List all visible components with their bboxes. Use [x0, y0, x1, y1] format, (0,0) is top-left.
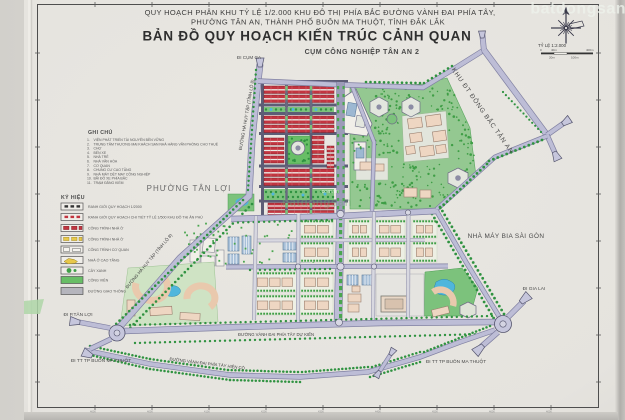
svg-text:PHƯỜNG TÂN LỢI: PHƯỜNG TÂN LỢI: [147, 184, 232, 193]
svg-text:RANH GIỚI QUY HOẠCH 1/2000: RANH GIỚI QUY HOẠCH 1/2000: [88, 204, 142, 209]
svg-text:20m: 20m: [549, 56, 555, 60]
svg-text:CÔNG TRÌNH NHÀ Ở: CÔNG TRÌNH NHÀ Ở: [88, 237, 123, 242]
svg-text:BẢN ĐỒ QUY HOẠCH KIẾN TRÚC CẢN: BẢN ĐỒ QUY HOẠCH KIẾN TRÚC CẢNH QUAN: [142, 29, 471, 44]
svg-text:4000: 4000: [546, 410, 552, 414]
svg-text:ĐI P.TÂN LỢI: ĐI P.TÂN LỢI: [63, 311, 92, 318]
svg-text:4600: 4600: [489, 410, 495, 414]
svg-text:CÔNG VIÊN: CÔNG VIÊN: [88, 278, 109, 283]
svg-text:NHÀ TRẺ: NHÀ TRẺ: [94, 154, 110, 159]
svg-text:CỤM CÔNG NGHIỆP TÂN AN 2: CỤM CÔNG NGHIỆP TÂN AN 2: [305, 47, 420, 56]
svg-text:NHÀ VĂN HÓA: NHÀ VĂN HÓA: [94, 159, 118, 164]
svg-text:400m: 400m: [586, 48, 594, 52]
svg-text:ĐI CỤM GA: ĐI CỤM GA: [237, 55, 262, 60]
svg-text:.com.vn: .com.vn: [320, 189, 339, 195]
svg-text:CÔNG TRÌNH NHÀ Ở: CÔNG TRÌNH NHÀ Ở: [88, 226, 123, 231]
svg-text:4100: 4100: [204, 410, 210, 414]
svg-text:4300: 4300: [318, 410, 324, 414]
svg-text:batdongsan: batdongsan: [530, 1, 625, 18]
svg-text:RANH GIỚI QUY HOẠCH CHI TIẾT T: RANH GIỚI QUY HOẠCH CHI TIẾT TỶ LỆ 1/500…: [88, 215, 203, 220]
svg-text:GHI CHÚ: GHI CHÚ: [88, 129, 113, 136]
svg-text:TRUNG TÂM THƯƠNG MẠI KHÁCH SẠN: TRUNG TÂM THƯƠNG MẠI KHÁCH SẠN NHÀ HÀNG …: [94, 141, 219, 146]
svg-text:NHÀ Ở CAO TẦNG: NHÀ Ở CAO TẦNG: [88, 258, 120, 263]
svg-text:TRẠM ĐĂNG KIỂM: TRẠM ĐĂNG KIỂM: [94, 180, 124, 185]
svg-text:100m: 100m: [571, 56, 579, 60]
svg-text:40m: 40m: [551, 48, 557, 52]
svg-text:QUY HOẠCH PHÂN KHU TỶ LỆ 1/2.0: QUY HOẠCH PHÂN KHU TỶ LỆ 1/2.000 KHU ĐÔ …: [145, 8, 496, 17]
svg-text:NHÀ MÁY DỆT MAY CÔNG NGHIỆP: NHÀ MÁY DỆT MAY CÔNG NGHIỆP: [94, 171, 152, 176]
svg-text:ĐƯỜNG VÀNH ĐAI PHÍA TÂY DỰ KIẾ: ĐƯỜNG VÀNH ĐAI PHÍA TÂY DỰ KIẾN: [238, 332, 314, 337]
svg-text:4200: 4200: [261, 410, 267, 414]
svg-text:4500: 4500: [432, 410, 438, 414]
svg-text:ĐI TT TP BUÔN MA THUỘT: ĐI TT TP BUÔN MA THUỘT: [426, 358, 486, 365]
svg-text:VIỆN PHÁT TRIỂN TÀI NGUYÊN BỀN: VIỆN PHÁT TRIỂN TÀI NGUYÊN BỀN VỮNG: [94, 137, 165, 142]
svg-text:PHƯỜNG TÂN AN, THÀNH PHỐ BUÔN: PHƯỜNG TÂN AN, THÀNH PHỐ BUÔN MA THUỘT, …: [191, 17, 445, 27]
svg-text:CÔNG TRÌNH CƠ QUAN: CÔNG TRÌNH CƠ QUAN: [88, 247, 129, 252]
svg-text:KÝ HIỆU: KÝ HIỆU: [61, 193, 85, 201]
svg-text:4600: 4600: [90, 410, 96, 414]
svg-text:11.: 11.: [87, 181, 92, 185]
svg-text:NHÀ MÁY BIA SÀI GÒN: NHÀ MÁY BIA SÀI GÒN: [468, 231, 545, 240]
svg-text:ĐI TT TP BUÔN MA THUỘT: ĐI TT TP BUÔN MA THUỘT: [71, 357, 131, 364]
svg-text:BẾN XE: BẾN XE: [94, 150, 107, 155]
svg-text:4400: 4400: [375, 410, 381, 414]
svg-text:4000: 4000: [147, 410, 153, 414]
svg-text:ĐƯỜNG GIAO THÔNG: ĐƯỜNG GIAO THÔNG: [88, 289, 126, 294]
svg-text:CÂY XANH: CÂY XANH: [88, 269, 107, 273]
svg-text:ĐI GIA LAI: ĐI GIA LAI: [523, 286, 546, 292]
svg-text:batdongsan: batdongsan: [282, 197, 352, 209]
svg-text:BÃI ĐỖ XE PHÍA BẮC: BÃI ĐỖ XE PHÍA BẮC: [94, 176, 129, 181]
